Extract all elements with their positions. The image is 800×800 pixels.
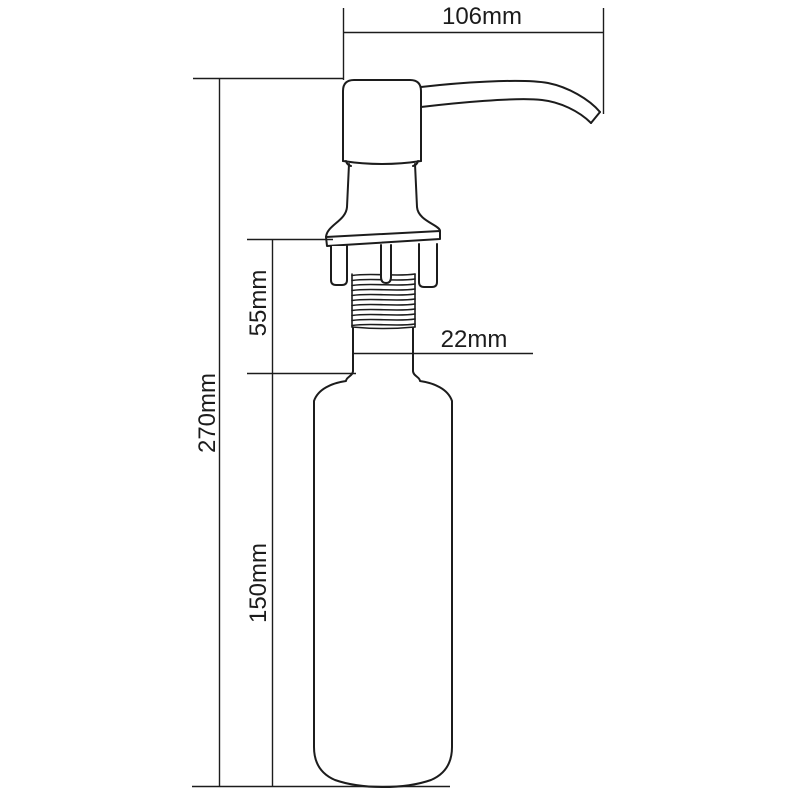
dim-106-label: 106mm — [442, 3, 522, 30]
pump-head-cap — [343, 80, 421, 161]
bottle-body — [314, 371, 452, 787]
dim-22-label: 22mm — [441, 326, 508, 353]
thread-bottom-edge — [352, 327, 415, 329]
spout — [421, 81, 600, 123]
dim-55-label: 55mm — [245, 270, 272, 337]
mounting-flange-disc — [326, 231, 440, 246]
dimension-bottle-height: 150mm — [245, 543, 272, 623]
pump-stem — [381, 245, 391, 283]
soap-dispenser-drawing: 106mm 270mm 55mm 150mm 22mm — [0, 0, 800, 800]
spout-bottom-edge — [421, 99, 591, 123]
dimension-overall-height: 270mm — [192, 78, 450, 787]
dim-150-label: 150mm — [245, 543, 272, 623]
dispenser-figure — [314, 80, 600, 787]
mounting-tab-left — [331, 246, 347, 285]
pump-shaft-left-edge — [326, 164, 349, 237]
dimension-neck-diameter: 22mm — [353, 326, 533, 354]
spout-top-edge — [421, 81, 600, 112]
dimension-spout-reach: 106mm — [343, 3, 604, 114]
pump-head-bottom-edge — [343, 161, 421, 164]
dimension-shank-height: 55mm — [245, 239, 356, 786]
dim-270-label: 270mm — [194, 373, 221, 453]
technical-drawing-page: 106mm 270mm 55mm 150mm 22mm — [0, 0, 800, 800]
spout-tip-face — [591, 112, 600, 123]
pump-shaft-right-edge — [415, 164, 440, 231]
mounting-tab-right — [419, 244, 437, 287]
